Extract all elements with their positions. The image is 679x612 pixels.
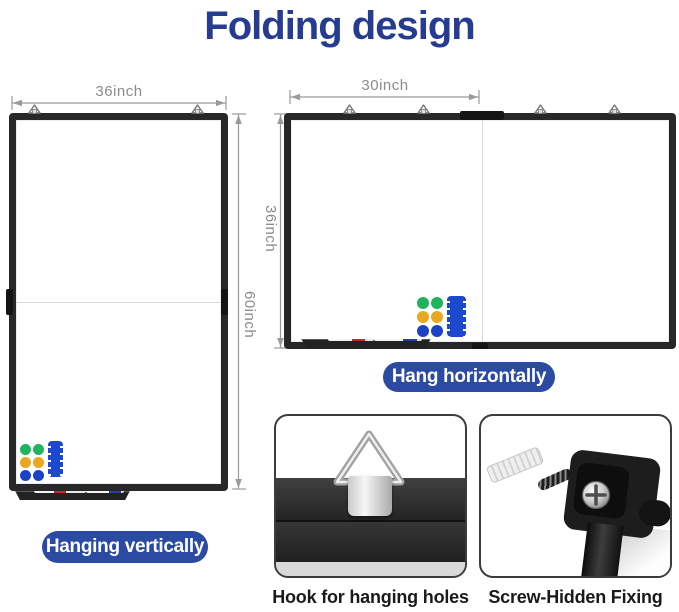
wall-anchor-icon [486, 446, 545, 484]
marker-pen-red [34, 488, 86, 493]
hang-vertically-badge: Hanging vertically [42, 531, 208, 563]
screw-detail-card [479, 414, 672, 578]
magnet-dot-blue [33, 470, 44, 481]
eraser [48, 441, 63, 477]
magnet-dot-green [417, 297, 429, 309]
eraser [447, 296, 466, 337]
detail-caption: Hook for hanging holes [264, 587, 477, 608]
hook-detail-card [274, 414, 467, 578]
marker-tray [14, 491, 131, 500]
screw-head-icon [579, 478, 613, 512]
product-infographic: Folding design [0, 0, 679, 612]
hanging-hook-icon [534, 104, 547, 114]
hanging-hook-icon [343, 104, 356, 114]
magnet-dot-yellow [431, 311, 443, 323]
page-title: Folding design [0, 0, 679, 50]
hanging-hook-icon [417, 104, 430, 114]
magnet-dot-green [431, 297, 443, 309]
magnet-dots [417, 297, 443, 337]
magnet-dot-blue [431, 325, 443, 337]
frame-edge [580, 522, 623, 578]
marker-pen-blue [86, 488, 124, 493]
magnet-dots [20, 444, 44, 481]
whiteboard-vertical [9, 113, 228, 491]
magnet-dot-blue [417, 325, 429, 337]
detail-caption: Screw-Hidden Fixing [469, 587, 679, 608]
magnet-dot-green [20, 444, 31, 455]
marker-pen-blue [374, 336, 422, 341]
hinge [472, 343, 488, 349]
magnet-dot-yellow [417, 311, 429, 323]
width-label-horizontal-board: 30inch [325, 78, 445, 94]
metal-clip [348, 476, 392, 516]
frame-base [276, 562, 465, 576]
fold-line [16, 302, 221, 303]
hinge [460, 111, 504, 120]
marker-pen-red [328, 336, 374, 341]
hanging-hook-icon [608, 104, 621, 114]
height-label-horizontal-board: 36inch [262, 205, 278, 265]
height-label-vertical-board: 60inch [241, 291, 257, 351]
magnet-dot-blue [20, 470, 31, 481]
fold-line [482, 120, 483, 342]
hang-horizontally-badge: Hang horizontally [383, 362, 555, 392]
hanging-hook-icon [191, 104, 204, 114]
magnet-dot-green [33, 444, 44, 455]
hinge [6, 289, 13, 315]
hanging-hook-icon [28, 104, 41, 114]
whiteboard-horizontal [284, 113, 676, 349]
frame-bar [276, 520, 465, 562]
hinge [221, 289, 228, 315]
marker-tray [300, 339, 432, 348]
magnet-dot-yellow [33, 457, 44, 468]
magnet-dot-yellow [20, 457, 31, 468]
width-label-vertical-board: 36inch [59, 84, 179, 100]
